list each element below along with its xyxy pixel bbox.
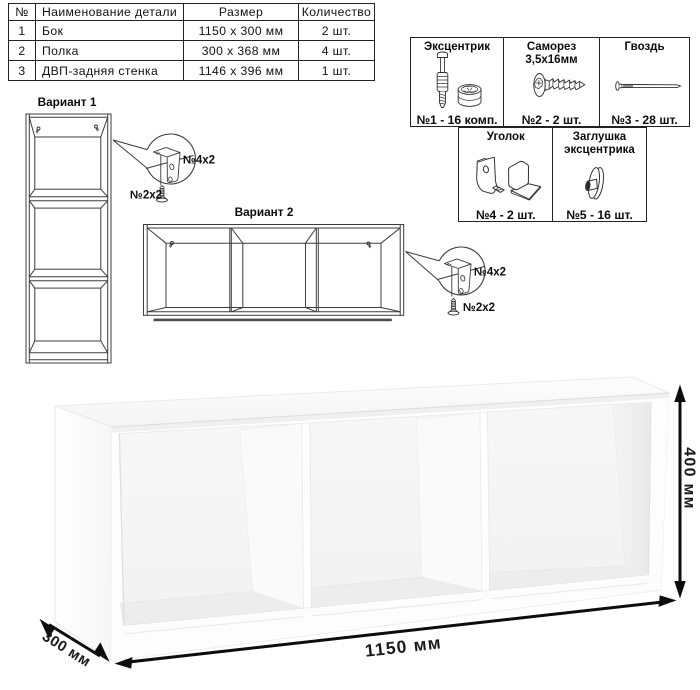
svg-text:400 мм: 400 мм <box>681 447 698 510</box>
svg-text:1150 мм: 1150 мм <box>364 632 443 660</box>
svg-text:Вариант 2: Вариант 2 <box>235 205 294 219</box>
svg-text:№4х2: №4х2 <box>474 267 506 279</box>
svg-text:№4х2: №4х2 <box>183 155 215 167</box>
svg-text:№2х2: №2х2 <box>463 302 495 314</box>
svg-text:№2х2: №2х2 <box>130 190 162 202</box>
svg-text:Вариант 1: Вариант 1 <box>38 95 97 109</box>
